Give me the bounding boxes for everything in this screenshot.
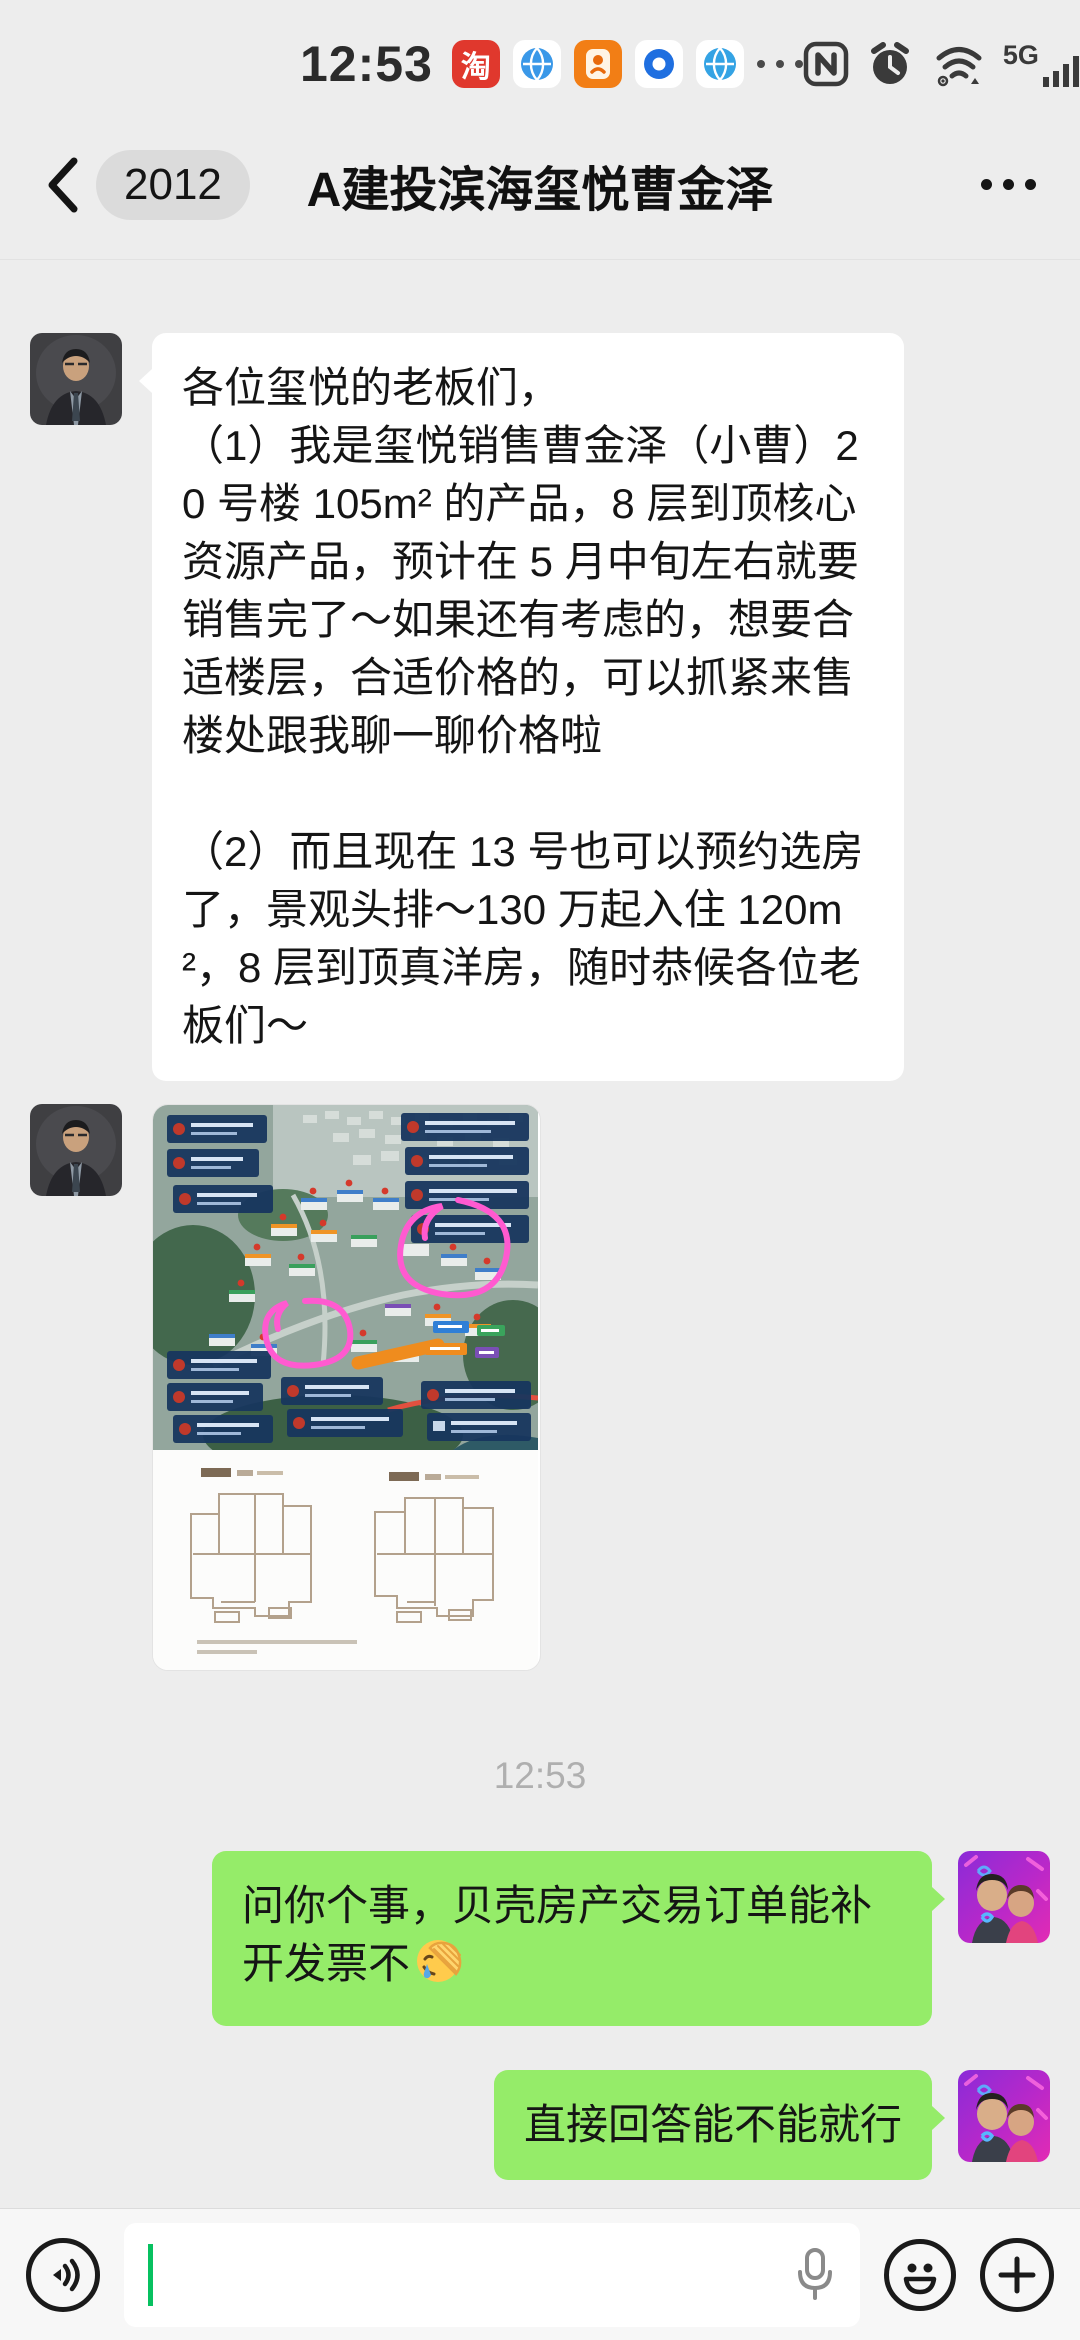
property-aerial-view-image [153, 1105, 538, 1450]
chat-title: A建投滨海玺悦曹金泽 [307, 150, 774, 220]
incoming-message-bubble[interactable]: 各位玺悦的老板们， （1）我是玺悦销售曹金泽（小曹）20 号楼 105m² 的产… [152, 333, 904, 1081]
more-notifications-icon [757, 60, 803, 68]
message-row-incoming-text: 各位玺悦的老板们， （1）我是玺悦销售曹金泽（小曹）20 号楼 105m² 的产… [0, 333, 1080, 1081]
wifi-hotspot-icon [931, 40, 987, 88]
couple-photo-avatar-image [958, 1851, 1050, 1943]
message-row-outgoing-text: 问你个事，贝壳房产交易订单能补开发票不 [0, 1851, 1080, 2026]
outgoing-message-bubble[interactable]: 直接回答能不能就行 [494, 2070, 932, 2180]
user-avatar[interactable] [958, 2070, 1050, 2162]
globe-icon [513, 40, 561, 88]
floor-plans-image [153, 1450, 538, 1670]
unread-count-badge: 2012 [96, 150, 250, 220]
status-right-group: 5G 91 [803, 40, 1080, 89]
taobao-icon: 淘 [452, 40, 500, 88]
couple-photo-avatar-image [958, 2070, 1050, 2162]
back-button[interactable]: 2012 [44, 150, 250, 220]
facepalm-emoji [414, 1937, 462, 2000]
message-list: 各位玺悦的老板们， （1）我是玺悦销售曹金泽（小曹）20 号楼 105m² 的产… [0, 260, 1080, 2208]
man-portrait-avatar-image [30, 1104, 122, 1196]
contact-avatar[interactable] [30, 333, 122, 425]
status-time: 12:53 [300, 35, 433, 93]
signal-bars-icon: 5G [1003, 40, 1080, 89]
outgoing-message-bubble[interactable]: 问你个事，贝壳房产交易订单能补开发票不 [212, 1851, 932, 2026]
time-divider: 12:53 [0, 1755, 1080, 1797]
globe-icon [696, 40, 744, 88]
man-portrait-avatar-image [30, 333, 122, 425]
blue-ring-icon [635, 40, 683, 88]
emoji-icon [897, 2252, 943, 2298]
text-cursor [148, 2244, 153, 2306]
message-input[interactable] [124, 2223, 860, 2327]
status-bar: 12:53 淘 5G [0, 0, 1080, 110]
orange-app-icon [574, 40, 622, 88]
voice-toggle-icon [43, 2253, 83, 2297]
more-menu-button[interactable] [981, 179, 1036, 190]
back-chevron-icon [44, 155, 80, 215]
emoji-button[interactable] [884, 2239, 956, 2311]
network-type-label: 5G [1003, 40, 1039, 71]
message-row-incoming-image [0, 1104, 1080, 1671]
nav-bar: 2012 A建投滨海玺悦曹金泽 [0, 110, 1080, 260]
status-left-group: 12:53 淘 [300, 35, 803, 93]
property-image-attachment[interactable] [152, 1104, 541, 1671]
user-avatar[interactable] [958, 1851, 1050, 1943]
wechat-chat-screen: 12:53 淘 5G [0, 0, 1080, 2340]
contact-avatar[interactable] [30, 1104, 122, 1196]
plus-button[interactable] [980, 2238, 1054, 2312]
input-bar [0, 2208, 1080, 2340]
nfc-icon [803, 41, 849, 87]
outgoing-message-text: 问你个事，贝壳房产交易订单能补开发票不 [242, 1882, 872, 1987]
voice-toggle-button[interactable] [26, 2238, 100, 2312]
message-row-outgoing-text: 直接回答能不能就行 [0, 2070, 1080, 2180]
plus-icon [995, 2253, 1039, 2297]
mic-icon[interactable] [794, 2246, 836, 2304]
alarm-icon [865, 40, 915, 88]
